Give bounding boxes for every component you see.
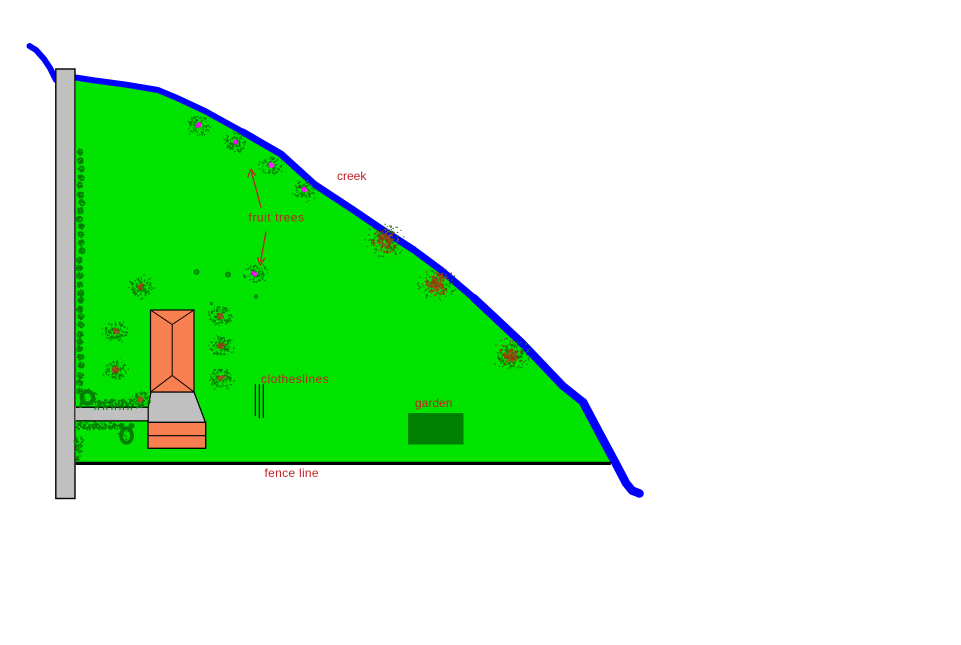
svg-text:fruit trees: fruit trees	[249, 211, 305, 225]
svg-text:fence line: fence line	[265, 466, 319, 480]
svg-text:creek: creek	[337, 169, 367, 183]
svg-text:clotheslines: clotheslines	[261, 372, 329, 386]
svg-text:garden: garden	[415, 396, 452, 410]
